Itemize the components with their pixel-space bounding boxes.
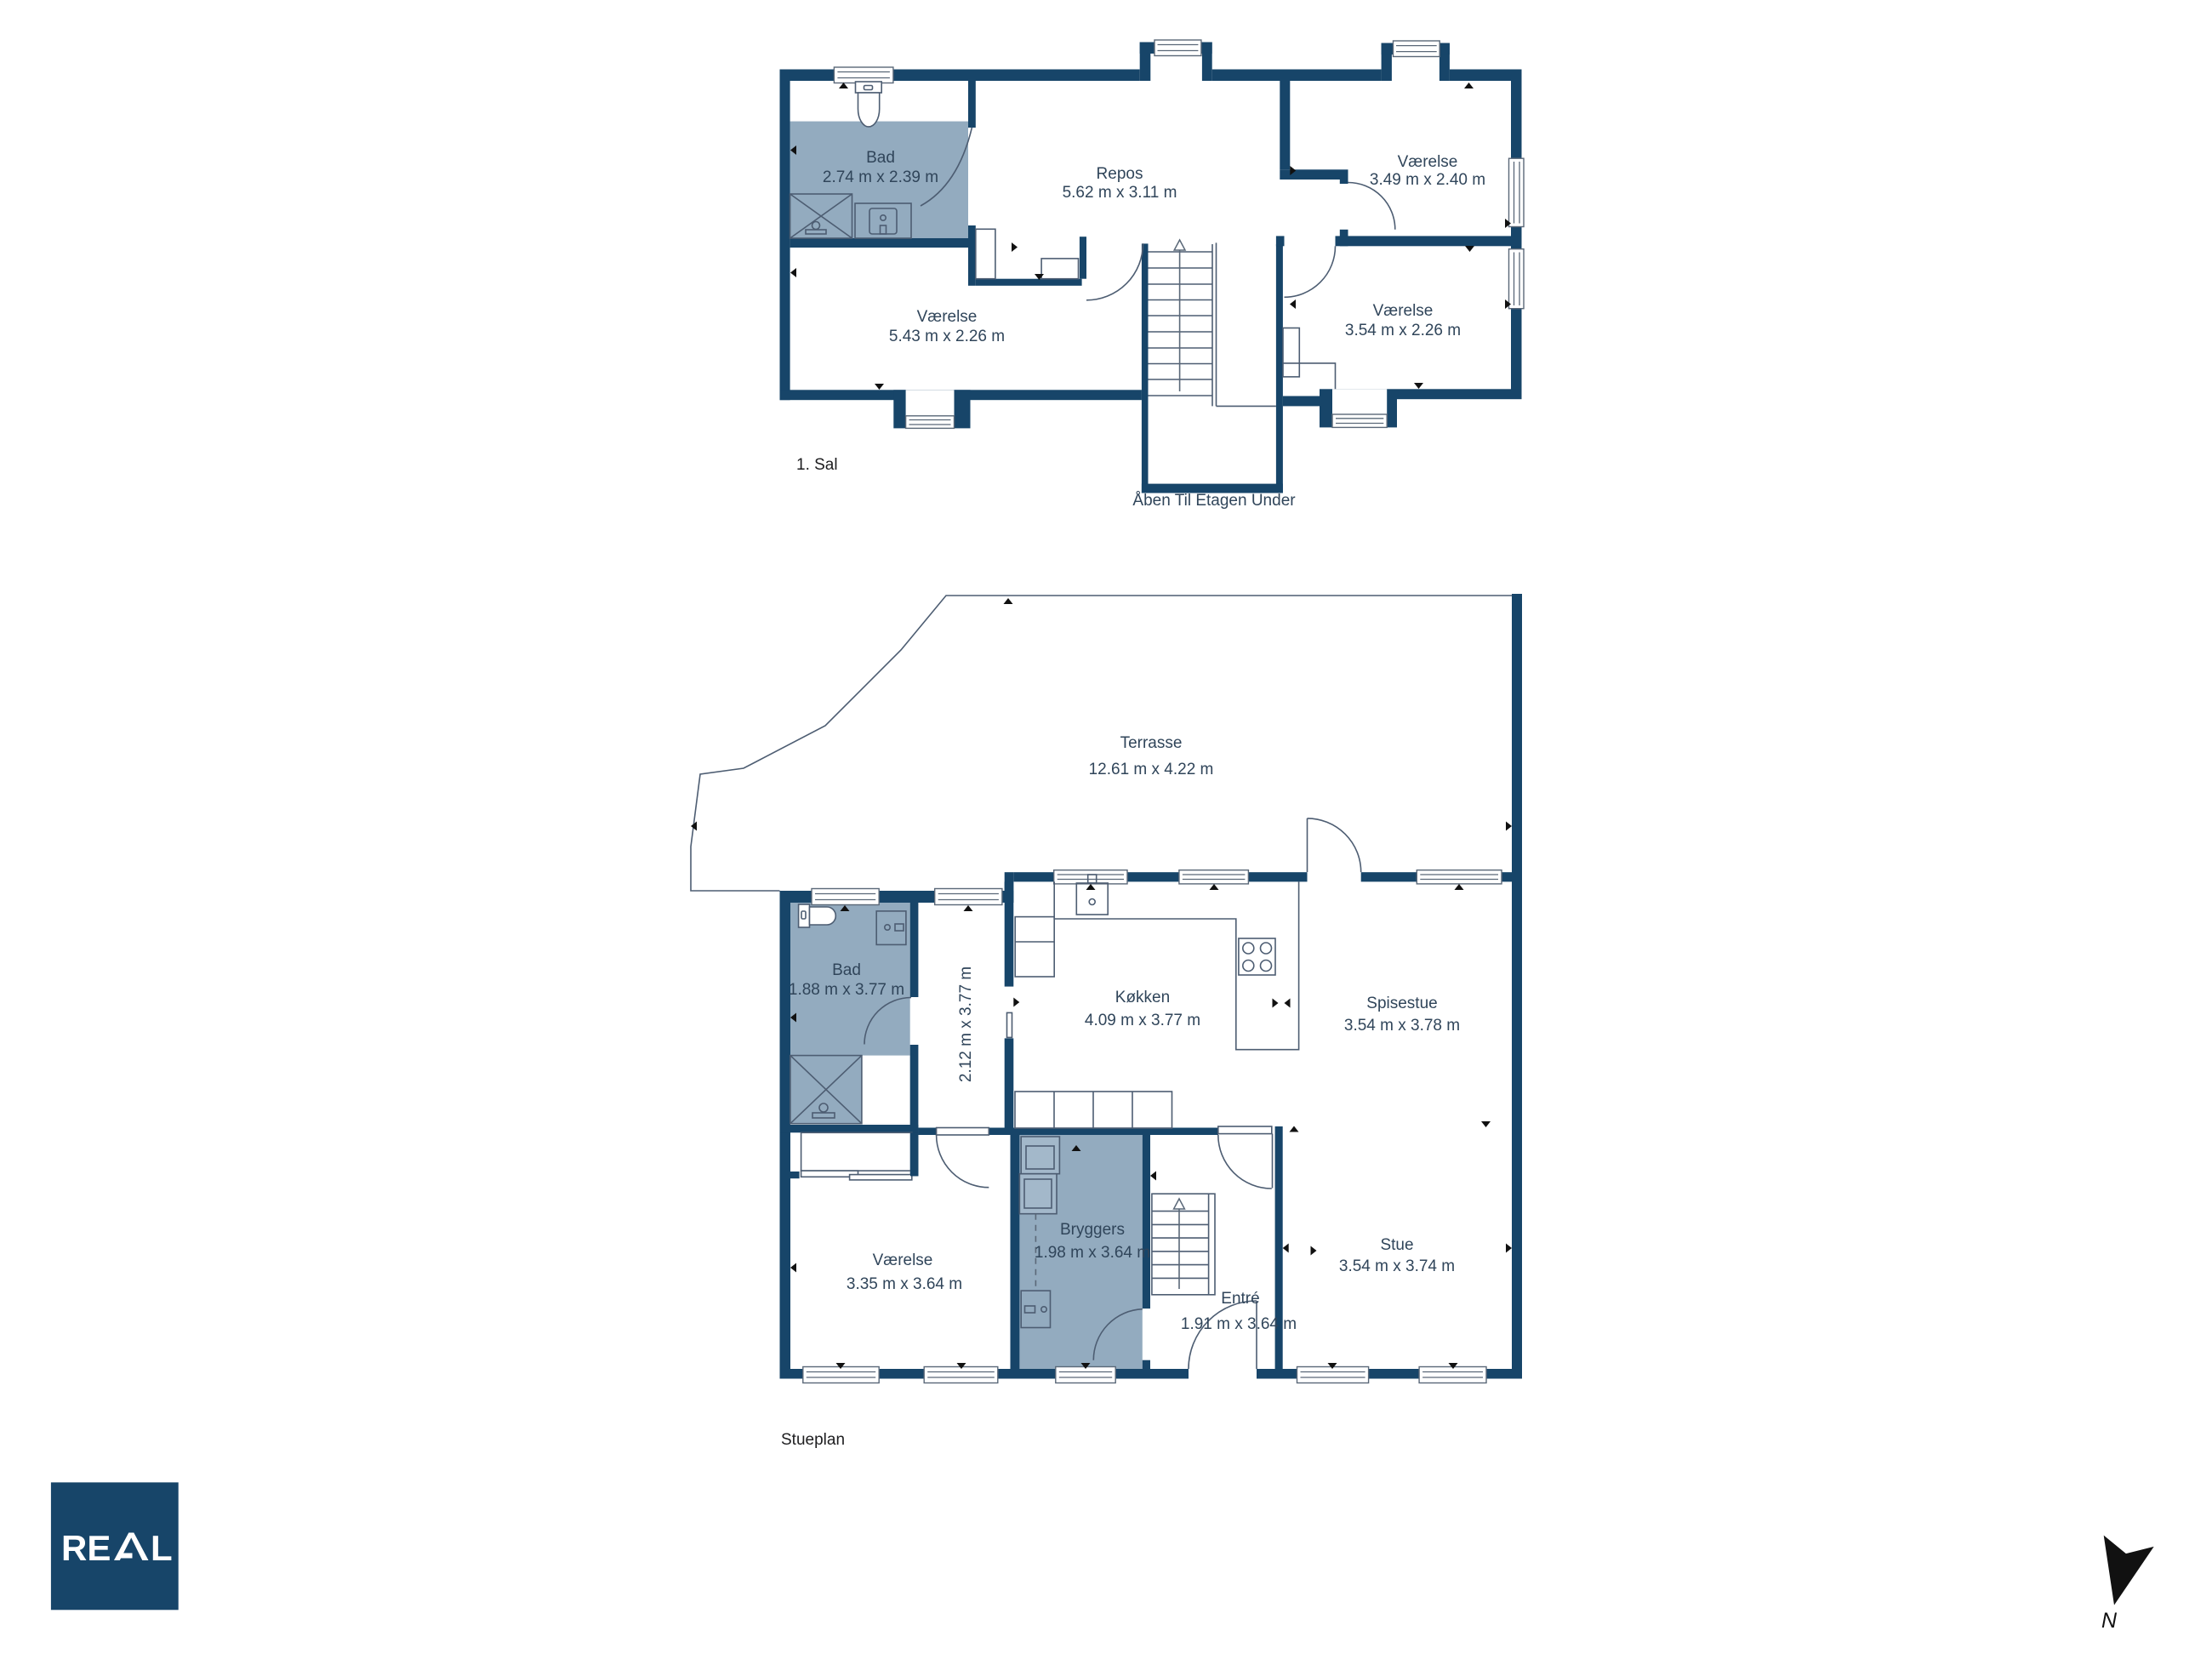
svg-text:Bryggers: Bryggers — [1060, 1221, 1125, 1239]
svg-text:3.54 m x 2.26 m: 3.54 m x 2.26 m — [1345, 322, 1461, 339]
svg-text:L: L — [151, 1528, 173, 1568]
svg-text:5.43 m x 2.26 m: 5.43 m x 2.26 m — [889, 328, 1005, 345]
svg-text:1.98 m x 3.64 m: 1.98 m x 3.64 m — [1035, 1244, 1150, 1262]
svg-text:Spisestue: Spisestue — [1366, 995, 1437, 1012]
svg-text:Terrasse: Terrasse — [1120, 734, 1183, 752]
svg-text:Stue: Stue — [1380, 1236, 1413, 1254]
svg-text:Åben Til Etagen Under: Åben Til Etagen Under — [1132, 492, 1296, 510]
svg-text:RE: RE — [61, 1528, 111, 1568]
svg-text:3.54 m x 3.78 m: 3.54 m x 3.78 m — [1344, 1017, 1460, 1035]
svg-text:Stueplan: Stueplan — [781, 1431, 845, 1449]
svg-text:Værelse: Værelse — [917, 308, 978, 326]
svg-text:2.74 m x 2.39 m: 2.74 m x 2.39 m — [823, 168, 938, 186]
svg-text:2.12 m x 3.77 m: 2.12 m x 3.77 m — [957, 966, 975, 1082]
svg-text:1.88 m x 3.77 m: 1.88 m x 3.77 m — [789, 981, 904, 999]
svg-text:1. Sal: 1. Sal — [796, 456, 838, 474]
svg-text:N: N — [2101, 1609, 2118, 1633]
svg-text:Værelse: Værelse — [873, 1251, 933, 1269]
svg-text:3.54 m x 3.74 m: 3.54 m x 3.74 m — [1339, 1257, 1455, 1275]
svg-text:1.91 m x 3.64 m: 1.91 m x 3.64 m — [1181, 1315, 1297, 1333]
svg-text:Værelse: Værelse — [1398, 153, 1458, 171]
svg-text:5.62 m x 3.11 m: 5.62 m x 3.11 m — [1063, 184, 1177, 202]
svg-text:Bad: Bad — [866, 149, 895, 167]
svg-text:Værelse: Værelse — [1373, 302, 1434, 320]
svg-text:12.61 m x 4.22 m: 12.61 m x 4.22 m — [1089, 761, 1214, 778]
svg-text:4.09 m x 3.77 m: 4.09 m x 3.77 m — [1085, 1012, 1200, 1029]
svg-text:Bad: Bad — [832, 961, 861, 979]
svg-text:3.35 m x 3.64 m: 3.35 m x 3.64 m — [847, 1275, 962, 1293]
svg-text:3.49 m x 2.40 m: 3.49 m x 2.40 m — [1370, 171, 1485, 189]
svg-text:Repos: Repos — [1097, 165, 1143, 183]
svg-text:Køkken: Køkken — [1115, 989, 1170, 1006]
svg-text:Entré: Entré — [1221, 1290, 1259, 1308]
